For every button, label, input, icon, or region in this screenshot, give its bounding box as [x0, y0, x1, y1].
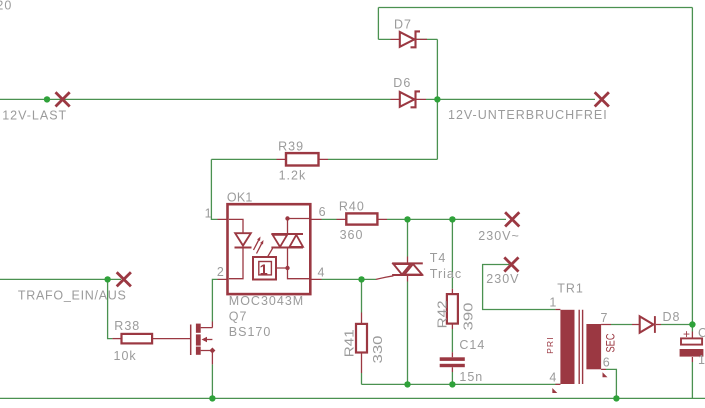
svg-text:OK1: OK1 [227, 190, 253, 204]
svg-text:TRAFO_EIN/AUS: TRAFO_EIN/AUS [18, 288, 127, 302]
svg-text:1.2k: 1.2k [279, 169, 307, 183]
svg-text:7: 7 [601, 311, 609, 325]
svg-text:PRI: PRI [545, 337, 555, 354]
svg-text:BS170: BS170 [229, 325, 272, 339]
svg-text:Triac: Triac [430, 267, 462, 281]
svg-text:1: 1 [698, 353, 705, 367]
svg-text:D8: D8 [663, 310, 681, 324]
svg-text:6: 6 [319, 205, 327, 219]
svg-text:SEC: SEC [605, 334, 618, 353]
svg-text:TR1: TR1 [557, 282, 584, 296]
svg-text:230V~: 230V~ [478, 229, 520, 243]
svg-text:R39: R39 [278, 139, 304, 153]
svg-text:1: 1 [205, 206, 213, 220]
svg-text:R38: R38 [114, 319, 140, 333]
svg-text:10k: 10k [114, 349, 137, 363]
svg-text:390: 390 [461, 302, 475, 330]
svg-text:12V-UNTERBRUCHFREI: 12V-UNTERBRUCHFREI [448, 108, 608, 122]
svg-text:R40: R40 [339, 200, 365, 214]
svg-text:1: 1 [549, 296, 557, 310]
svg-text:1: 1 [260, 262, 268, 278]
svg-text:15n: 15n [459, 370, 483, 384]
svg-text:T4: T4 [430, 251, 447, 265]
svg-text:D7: D7 [394, 18, 412, 32]
svg-text:2: 2 [217, 265, 225, 279]
svg-text:330: 330 [371, 335, 385, 363]
svg-text:C14: C14 [459, 338, 485, 352]
svg-text:Q7: Q7 [229, 309, 248, 323]
svg-text:C: C [698, 326, 705, 340]
svg-text:MOC3043M: MOC3043M [229, 294, 304, 308]
svg-text:4: 4 [318, 266, 326, 280]
svg-text:4: 4 [549, 371, 557, 385]
svg-text:D6: D6 [393, 76, 411, 90]
svg-text:R42: R42 [435, 300, 449, 328]
svg-text:360: 360 [340, 228, 364, 242]
svg-text:R41: R41 [342, 329, 356, 357]
svg-text:+: + [683, 327, 690, 341]
svg-text:12V-LAST: 12V-LAST [2, 108, 67, 122]
svg-text:6: 6 [603, 356, 611, 370]
svg-text:20: 20 [0, 0, 12, 13]
svg-text:230V: 230V [486, 272, 519, 286]
